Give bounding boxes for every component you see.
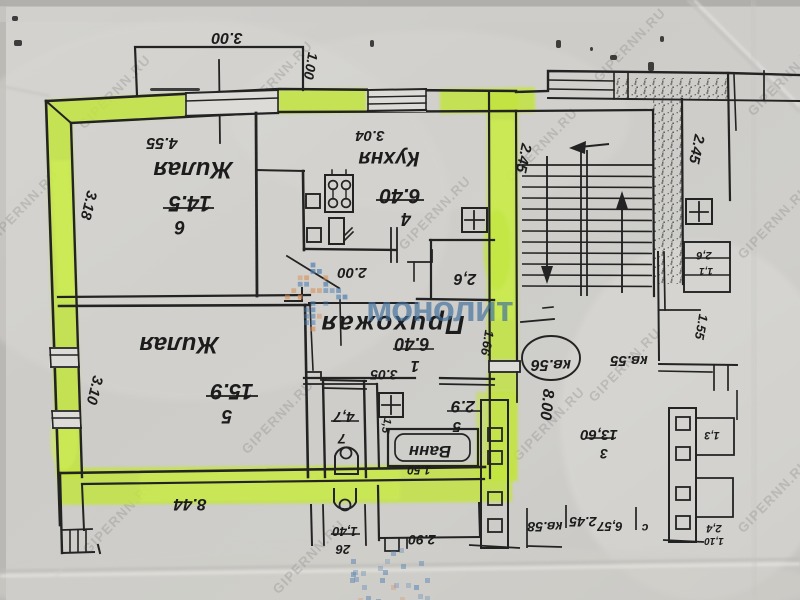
svg-text:2,4: 2,4	[706, 522, 722, 534]
svg-text:1,40: 1,40	[332, 524, 358, 539]
svg-text:6,57: 6,57	[597, 519, 623, 534]
svg-text:6: 6	[174, 216, 185, 237]
svg-text:кв.58: кв.58	[527, 519, 562, 535]
svg-text:4: 4	[401, 209, 412, 229]
svg-text:Жилая: Жилая	[153, 156, 234, 183]
svg-text:2.45: 2.45	[569, 514, 597, 530]
svg-text:1,10: 1,10	[704, 535, 724, 546]
svg-text:3.04: 3.04	[355, 127, 385, 144]
svg-text:1,1: 1,1	[699, 265, 713, 276]
svg-text:1.50: 1.50	[407, 463, 431, 477]
svg-text:2,6: 2,6	[695, 249, 712, 261]
svg-text:8.44: 8.44	[173, 495, 207, 514]
svg-text:15.9: 15.9	[210, 379, 254, 404]
svg-text:3.00: 3.00	[211, 29, 242, 46]
svg-text:8.00: 8.00	[536, 388, 556, 421]
svg-text:с: с	[641, 521, 648, 535]
svg-text:1: 1	[410, 357, 419, 374]
svg-text:6.40: 6.40	[379, 184, 420, 207]
svg-text:монолит: монолит	[366, 288, 513, 329]
svg-text:2.00: 2.00	[337, 264, 368, 281]
svg-text:Ванн: Ванн	[409, 442, 451, 461]
svg-text:2.90: 2.90	[408, 532, 436, 548]
svg-text:кв.56: кв.56	[531, 356, 571, 373]
svg-text:6.40: 6.40	[394, 334, 429, 354]
svg-text:7: 7	[337, 431, 346, 447]
svg-text:5: 5	[221, 405, 232, 426]
svg-text:Кухня: Кухня	[358, 147, 419, 170]
svg-text:Жилая: Жилая	[139, 331, 220, 358]
svg-text:4.55: 4.55	[145, 134, 178, 151]
svg-text:5: 5	[452, 418, 461, 435]
svg-text:14.5: 14.5	[168, 191, 212, 216]
svg-text:2.9: 2.9	[451, 397, 476, 416]
svg-text:13,60: 13,60	[580, 426, 618, 443]
svg-text:3: 3	[600, 446, 608, 462]
svg-text:26: 26	[335, 542, 351, 557]
svg-text:2,6: 2,6	[454, 270, 477, 287]
svg-text:4,7: 4,7	[333, 408, 356, 425]
svg-text:1,3: 1,3	[704, 429, 719, 441]
svg-text:кв.55: кв.55	[610, 352, 648, 369]
svg-text:3.05: 3.05	[370, 367, 397, 383]
